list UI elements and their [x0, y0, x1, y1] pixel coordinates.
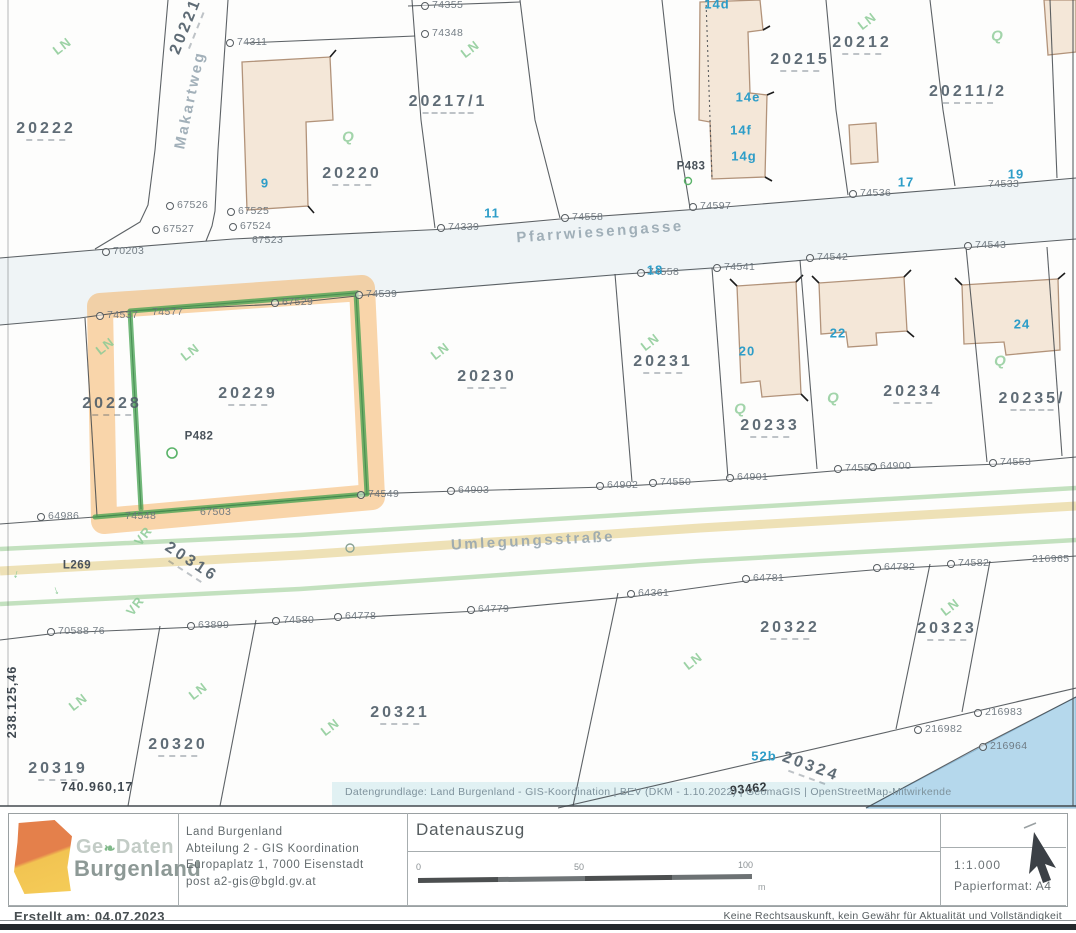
- point-label-l269: L269: [63, 560, 91, 572]
- boundary-point-64900: 64900: [880, 461, 911, 472]
- parcel-label-20231: 20231: [633, 354, 693, 374]
- house-number-22: 22: [830, 327, 846, 340]
- boundary-point-74339: 74339: [448, 222, 479, 233]
- boundary-point-74536: 74536: [860, 188, 891, 199]
- street-name-makartweg: Makartweg: [172, 50, 207, 151]
- boundary-point-216982: 216982: [925, 724, 962, 735]
- boundary-point-74550: 74550: [660, 477, 691, 488]
- house-number-17: 17: [898, 176, 914, 189]
- boundary-point-74542: 74542: [817, 252, 848, 263]
- parcel-label-20217-1: 20217/1: [409, 94, 488, 114]
- map-scale-ratio: 1:1.000: [954, 858, 1001, 872]
- boundary-point-marker: [227, 208, 235, 216]
- boundary-point-64902: 64902: [607, 480, 638, 491]
- footer-divider: [408, 851, 940, 852]
- parcel-label-20323: 20323: [917, 621, 977, 641]
- footer-titleblock: Ge❧Daten Burgenland Land Burgenland Abte…: [0, 810, 1076, 933]
- house-number-11: 11: [484, 207, 500, 220]
- parcel-label-20228: 20228: [82, 396, 142, 416]
- veg-marker-q: Q: [734, 402, 746, 417]
- boundary-point-marker: [226, 39, 234, 47]
- parcel-label-20215: 20215: [770, 52, 830, 72]
- footer-bottom-line: [0, 920, 1076, 921]
- boundary-point-marker: [964, 242, 972, 250]
- boundary-point-64779: 64779: [478, 604, 509, 615]
- footer-divider: [407, 813, 408, 905]
- boundary-point-64361: 64361: [638, 588, 669, 599]
- parcel-label-20234: 20234: [883, 384, 943, 404]
- veg-marker-ln: LN: [855, 10, 878, 32]
- scale-tick-50: 50: [574, 862, 584, 872]
- boundary-point-67524: 67524: [240, 221, 271, 232]
- veg-marker-ln: LN: [186, 680, 209, 702]
- boundary-point-63899: 63899: [198, 620, 229, 631]
- veg-marker-vr: VR: [124, 594, 147, 618]
- house-number-14f: 14f: [730, 124, 752, 137]
- boundary-point-marker: [742, 575, 750, 583]
- boundary-point-67527: 67527: [163, 224, 194, 235]
- parcel-label-20230: 20230: [457, 369, 517, 389]
- map-attribution: Datengrundlage: Land Burgenland - GIS-Ko…: [345, 786, 951, 798]
- boundary-point-marker: [637, 269, 645, 277]
- boundary-point-67529: 67529: [282, 297, 313, 308]
- boundary-point-marker: [229, 223, 237, 231]
- map-coordinate-238-125-46: 238.125,46: [6, 666, 19, 739]
- house-number-52b: 52b: [751, 750, 776, 763]
- parcel-label-20229: 20229: [218, 386, 278, 406]
- boundary-point-74597: 74597: [700, 201, 731, 212]
- veg-marker-ln: LN: [50, 35, 73, 57]
- veg-marker-q: Q: [991, 29, 1003, 44]
- boundary-point-74348: 74348: [432, 28, 463, 39]
- boundary-point-74582: 74582: [958, 558, 989, 569]
- veg-marker-vr: VR: [132, 524, 155, 548]
- boundary-point-64778: 64778: [345, 611, 376, 622]
- boundary-point-marker: [649, 479, 657, 487]
- boundary-point-216965: 216965: [1032, 554, 1069, 565]
- boundary-point-marker: [989, 459, 997, 467]
- veg-marker-ln: LN: [93, 335, 116, 357]
- boundary-point-marker: [849, 190, 857, 198]
- address-line: post a2-gis@bgld.gv.at: [186, 874, 364, 891]
- parcel-label-20321: 20321: [370, 705, 430, 725]
- boundary-point-67525: 67525: [238, 206, 269, 217]
- map-coordinate-740-960-17: 740.960,17: [61, 781, 134, 794]
- parcel-label-20322: 20322: [760, 620, 820, 640]
- boundary-point-marker: [271, 299, 279, 307]
- scale-unit: m: [758, 882, 766, 892]
- boundary-point-marker: [974, 709, 982, 717]
- boundary-point-marker: [102, 248, 110, 256]
- boundary-point-marker: [187, 622, 195, 630]
- boundary-point-marker: [437, 224, 445, 232]
- boundary-point-marker: [357, 491, 365, 499]
- house-number-18: 18: [647, 264, 663, 277]
- geodaten-burgenland-logo: [14, 820, 72, 894]
- boundary-point-67523: 67523: [252, 235, 283, 246]
- house-number-14g: 14g: [731, 150, 756, 163]
- boundary-point-marker: [627, 590, 635, 598]
- veg-marker-ln: LN: [66, 691, 89, 713]
- address-line: Land Burgenland: [186, 824, 364, 841]
- boundary-point-marker: [947, 560, 955, 568]
- boundary-point-74543: 74543: [975, 240, 1006, 251]
- document-title: Datenauszug: [416, 820, 525, 840]
- cadastral-map: LNLNLNLNLNLNLNLNLNLNLNLNQQQQQVRVR→→74355…: [0, 0, 1076, 810]
- boundary-point-216983: 216983: [985, 707, 1022, 718]
- issuer-address: Land Burgenland Abteilung 2 - GIS Koordi…: [186, 824, 364, 891]
- creation-date: Erstellt am: 04.07.2023: [14, 909, 165, 924]
- boundary-point-marker: [334, 613, 342, 621]
- boundary-point-67526: 67526: [177, 200, 208, 211]
- house-number-19: 19: [1008, 168, 1024, 181]
- boundary-point-marker: [806, 254, 814, 262]
- boundary-point-74558: 74558: [572, 212, 603, 223]
- boundary-point-marker: [96, 312, 104, 320]
- street-name-pfarrwiesengasse: Pfarrwiesengasse: [516, 219, 684, 246]
- boundary-point-marker: [979, 743, 987, 751]
- veg-marker-q: Q: [342, 130, 354, 145]
- boundary-point-70588-76: 70588 76: [58, 626, 105, 637]
- veg-marker-ln: LN: [638, 331, 661, 353]
- parcel-label-20320: 20320: [148, 737, 208, 757]
- boundary-point-marker: [914, 726, 922, 734]
- boundary-point-marker: [152, 226, 160, 234]
- veg-marker-q: Q: [827, 391, 839, 406]
- veg-marker-ln: LN: [178, 341, 201, 363]
- veg-arrow--: →: [50, 582, 65, 597]
- boundary-point-marker: [713, 264, 721, 272]
- parcel-label-20233: 20233: [740, 418, 800, 438]
- house-number-14e: 14e: [736, 91, 761, 104]
- boundary-point-74311: 74311: [237, 37, 267, 48]
- street-name-umlegungsstra-e: Umlegungsstraße: [451, 529, 616, 553]
- map-labels-layer: LNLNLNLNLNLNLNLNLNLNLNLNQQQQQVRVR→→74355…: [0, 0, 1076, 810]
- boundary-point-74577: 74577: [152, 307, 183, 318]
- boundary-point-marker: [869, 463, 877, 471]
- parcel-label-20324: 20324: [779, 749, 842, 788]
- boundary-point-marker: [37, 513, 45, 521]
- veg-marker-q: Q: [994, 354, 1006, 369]
- logo-text-bottom: Burgenland: [74, 856, 201, 882]
- boundary-point-64986: 64986: [48, 511, 79, 522]
- boundary-point-marker: [421, 30, 429, 38]
- parcel-label-20319: 20319: [28, 761, 88, 781]
- boundary-point-marker: [447, 487, 455, 495]
- boundary-point-64901: 64901: [737, 472, 768, 483]
- boundary-point-74549: 74549: [368, 489, 399, 500]
- boundary-point-74537: 74537: [107, 310, 138, 321]
- parcel-label-20316: 20316: [160, 539, 221, 588]
- scale-tick-0: 0: [416, 862, 421, 872]
- address-line: Abteilung 2 - GIS Koordination: [186, 841, 364, 858]
- footer-divider: [8, 905, 1066, 906]
- boundary-point-74580: 74580: [283, 615, 314, 626]
- point-label-p482: P482: [185, 431, 214, 443]
- veg-marker-ln: LN: [318, 716, 341, 738]
- boundary-point-marker: [272, 617, 280, 625]
- veg-arrow--: →: [11, 568, 26, 583]
- house-number-14d: 14d: [704, 0, 729, 11]
- boundary-point-marker: [689, 203, 697, 211]
- veg-marker-ln: LN: [428, 340, 451, 362]
- boundary-point-marker: [47, 628, 55, 636]
- veg-marker-ln: LN: [938, 596, 961, 618]
- veg-marker-ln: LN: [681, 650, 704, 672]
- veg-marker-ln: LN: [458, 38, 481, 60]
- boundary-point-marker: [834, 465, 842, 473]
- boundary-point-marker: [873, 564, 881, 572]
- boundary-point-marker: [166, 202, 174, 210]
- address-line: Europaplatz 1, 7000 Eisenstadt: [186, 857, 364, 874]
- boundary-point-marker: [726, 474, 734, 482]
- datenauszug-page: LNLNLNLNLNLNLNLNLNLNLNLNQQQQQVRVR→→74355…: [0, 0, 1076, 933]
- house-number-9: 9: [261, 177, 269, 190]
- parcel-label-20220: 20220: [322, 166, 382, 186]
- boundary-point-marker: [561, 214, 569, 222]
- boundary-point-67503: 67503: [200, 507, 231, 518]
- parcel-label-20222: 20222: [16, 121, 76, 141]
- boundary-point-marker: [355, 291, 363, 299]
- parcel-label-20211-2: 20211/2: [929, 84, 1007, 104]
- boundary-point-74355: 74355: [432, 0, 463, 10]
- boundary-point-74553: 74553: [1000, 457, 1031, 468]
- house-number-24: 24: [1014, 318, 1030, 331]
- leaf-icon: ❧: [104, 840, 116, 856]
- footer-divider: [940, 813, 941, 905]
- cursor-pointer-icon: [1016, 818, 1066, 888]
- boundary-point-marker: [596, 482, 604, 490]
- boundary-point-64903: 64903: [458, 485, 489, 496]
- boundary-point-70203: 70203: [113, 246, 144, 257]
- footer-bottom-bar: [0, 924, 1076, 930]
- point-label-p483: P483: [677, 161, 706, 173]
- boundary-point-74539: 74539: [366, 289, 397, 300]
- boundary-point-64782: 64782: [884, 562, 915, 573]
- house-number-20: 20: [739, 345, 755, 358]
- boundary-point-216964: 216964: [990, 741, 1027, 752]
- boundary-point-64781: 64781: [753, 573, 784, 584]
- parcel-label-20221: 20221: [168, 0, 209, 58]
- boundary-point-marker: [467, 606, 475, 614]
- parcel-label-20235-: 20235/: [999, 391, 1066, 411]
- boundary-point-74541: 74541: [724, 262, 755, 273]
- scale-tick-100: 100: [738, 860, 753, 870]
- parcel-label-20212: 20212: [832, 35, 892, 55]
- boundary-point-marker: [421, 2, 429, 10]
- boundary-point-74548: 74548: [125, 511, 156, 522]
